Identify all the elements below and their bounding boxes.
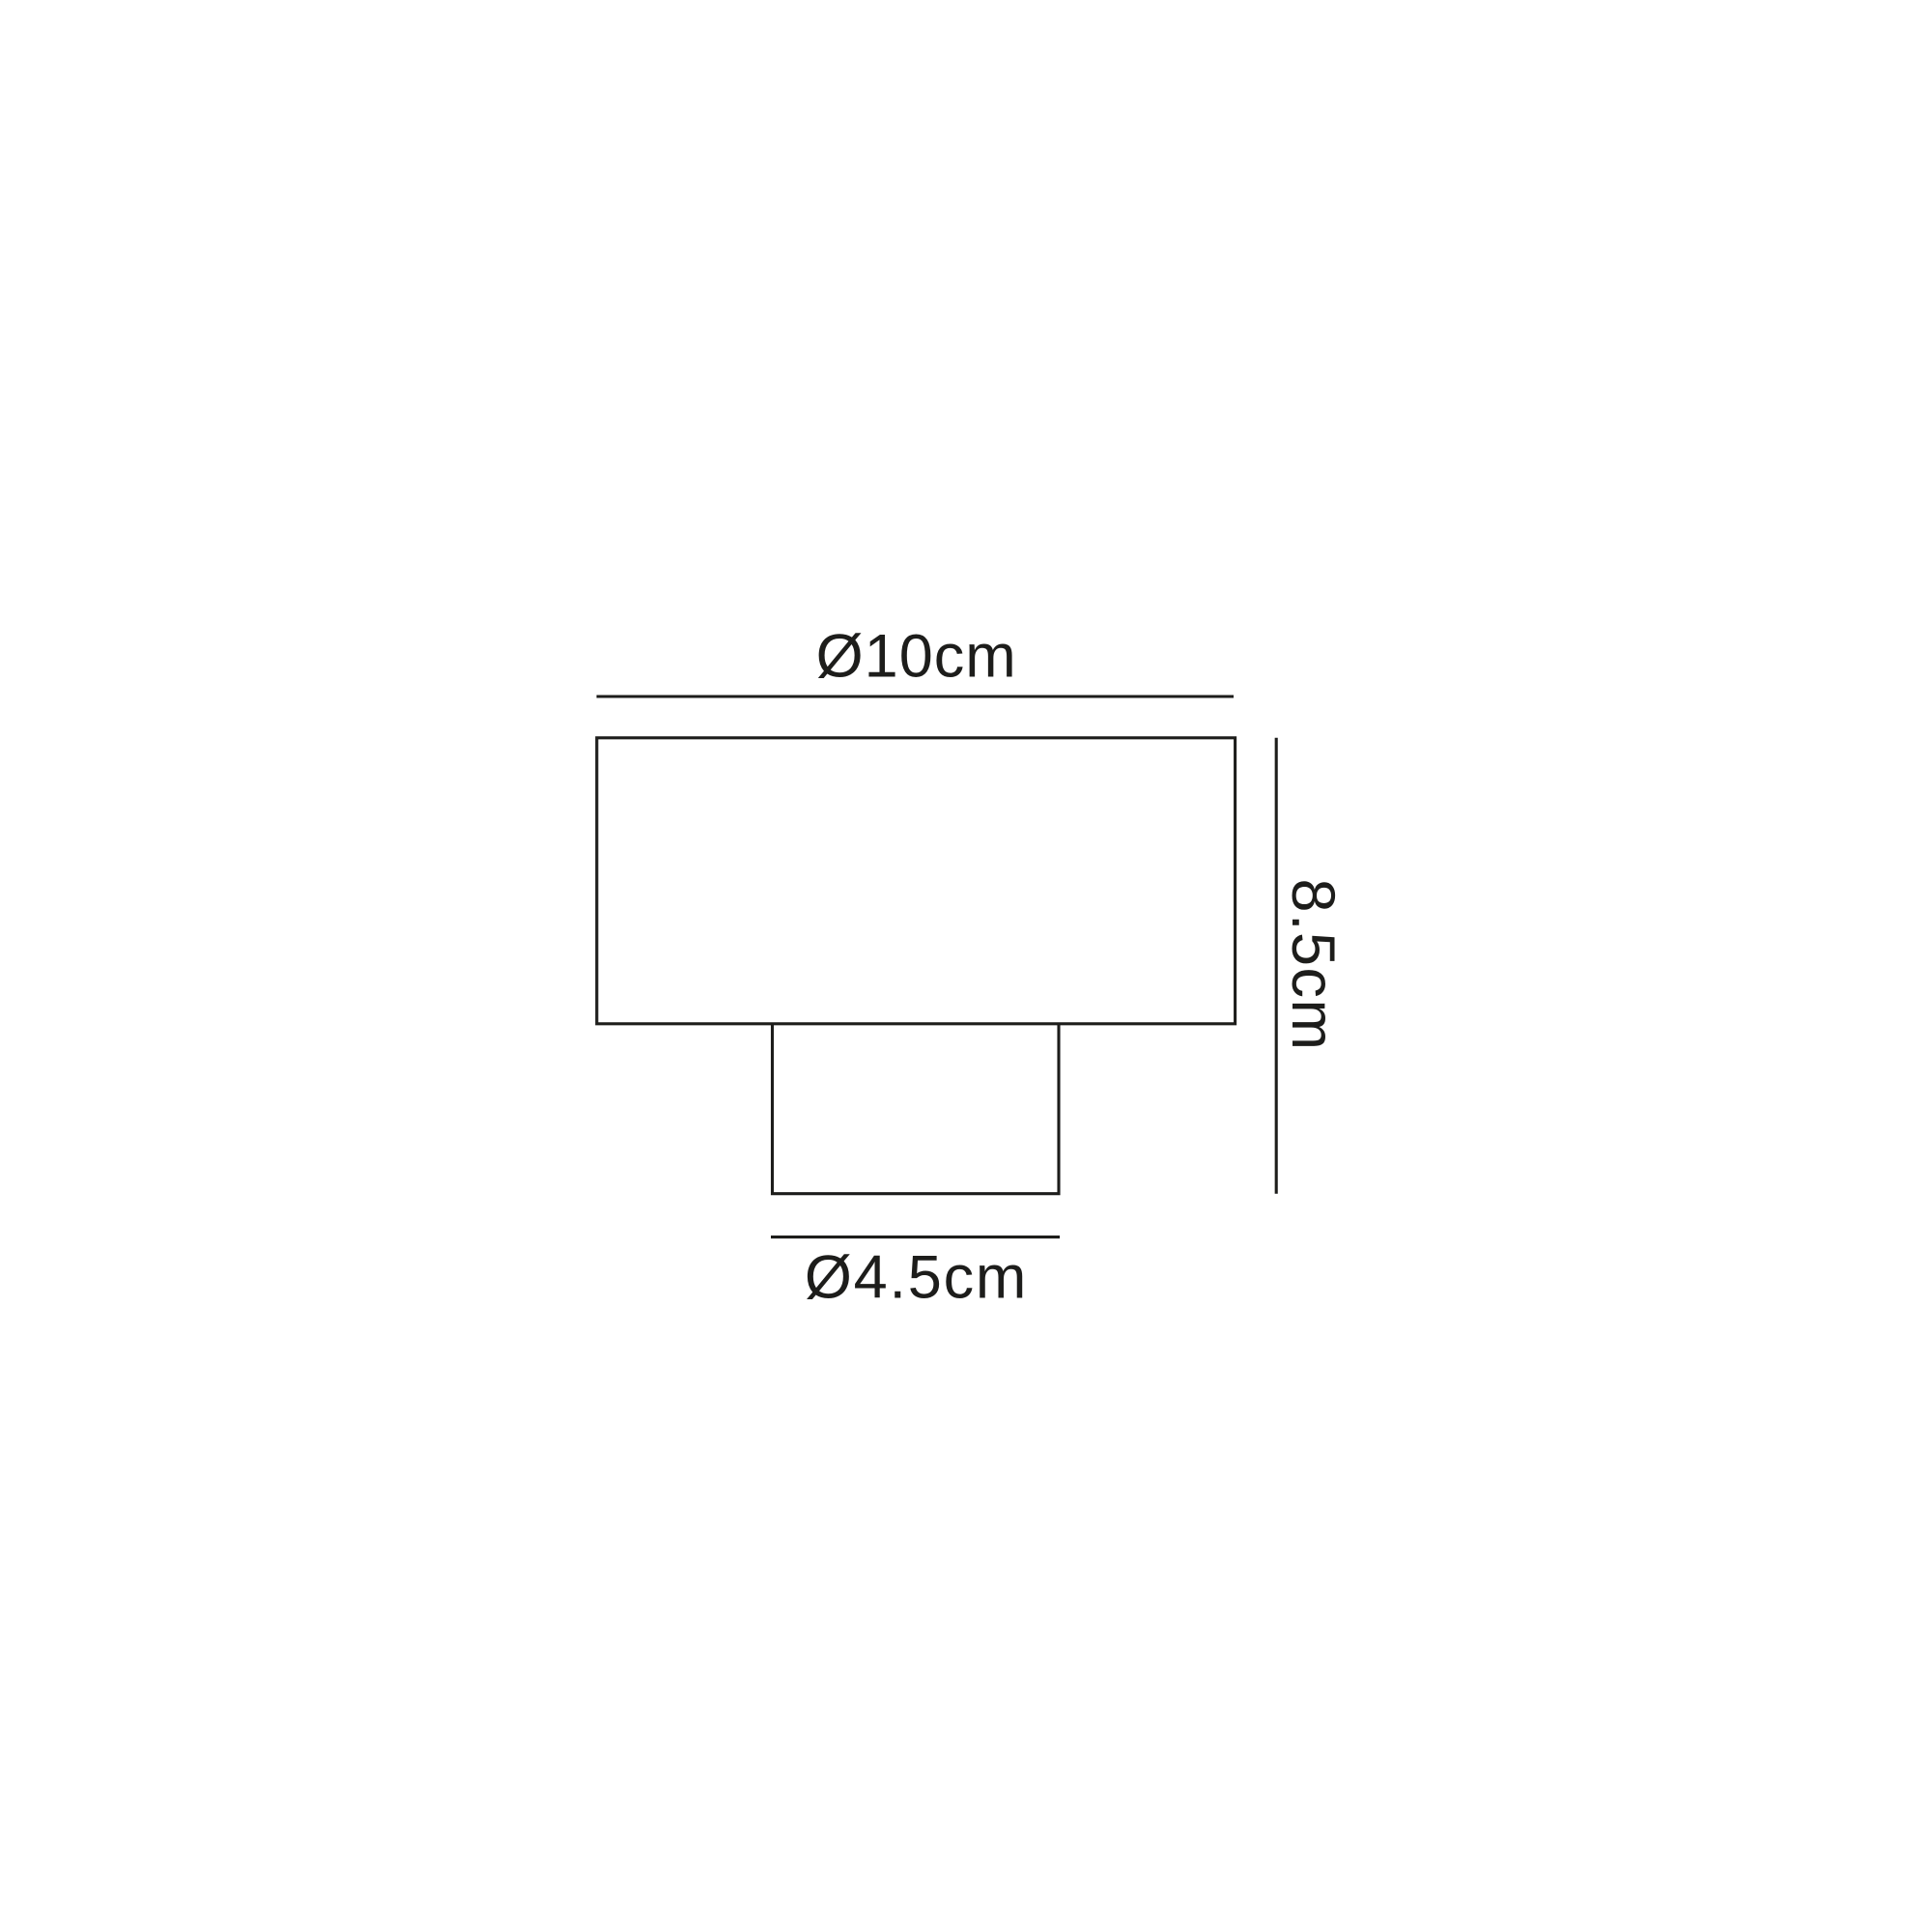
svg-text:8.5cm: 8.5cm xyxy=(1279,878,1347,1051)
svg-text:Ø4.5cm: Ø4.5cm xyxy=(805,1244,1028,1312)
svg-text:Ø10cm: Ø10cm xyxy=(816,622,1017,690)
